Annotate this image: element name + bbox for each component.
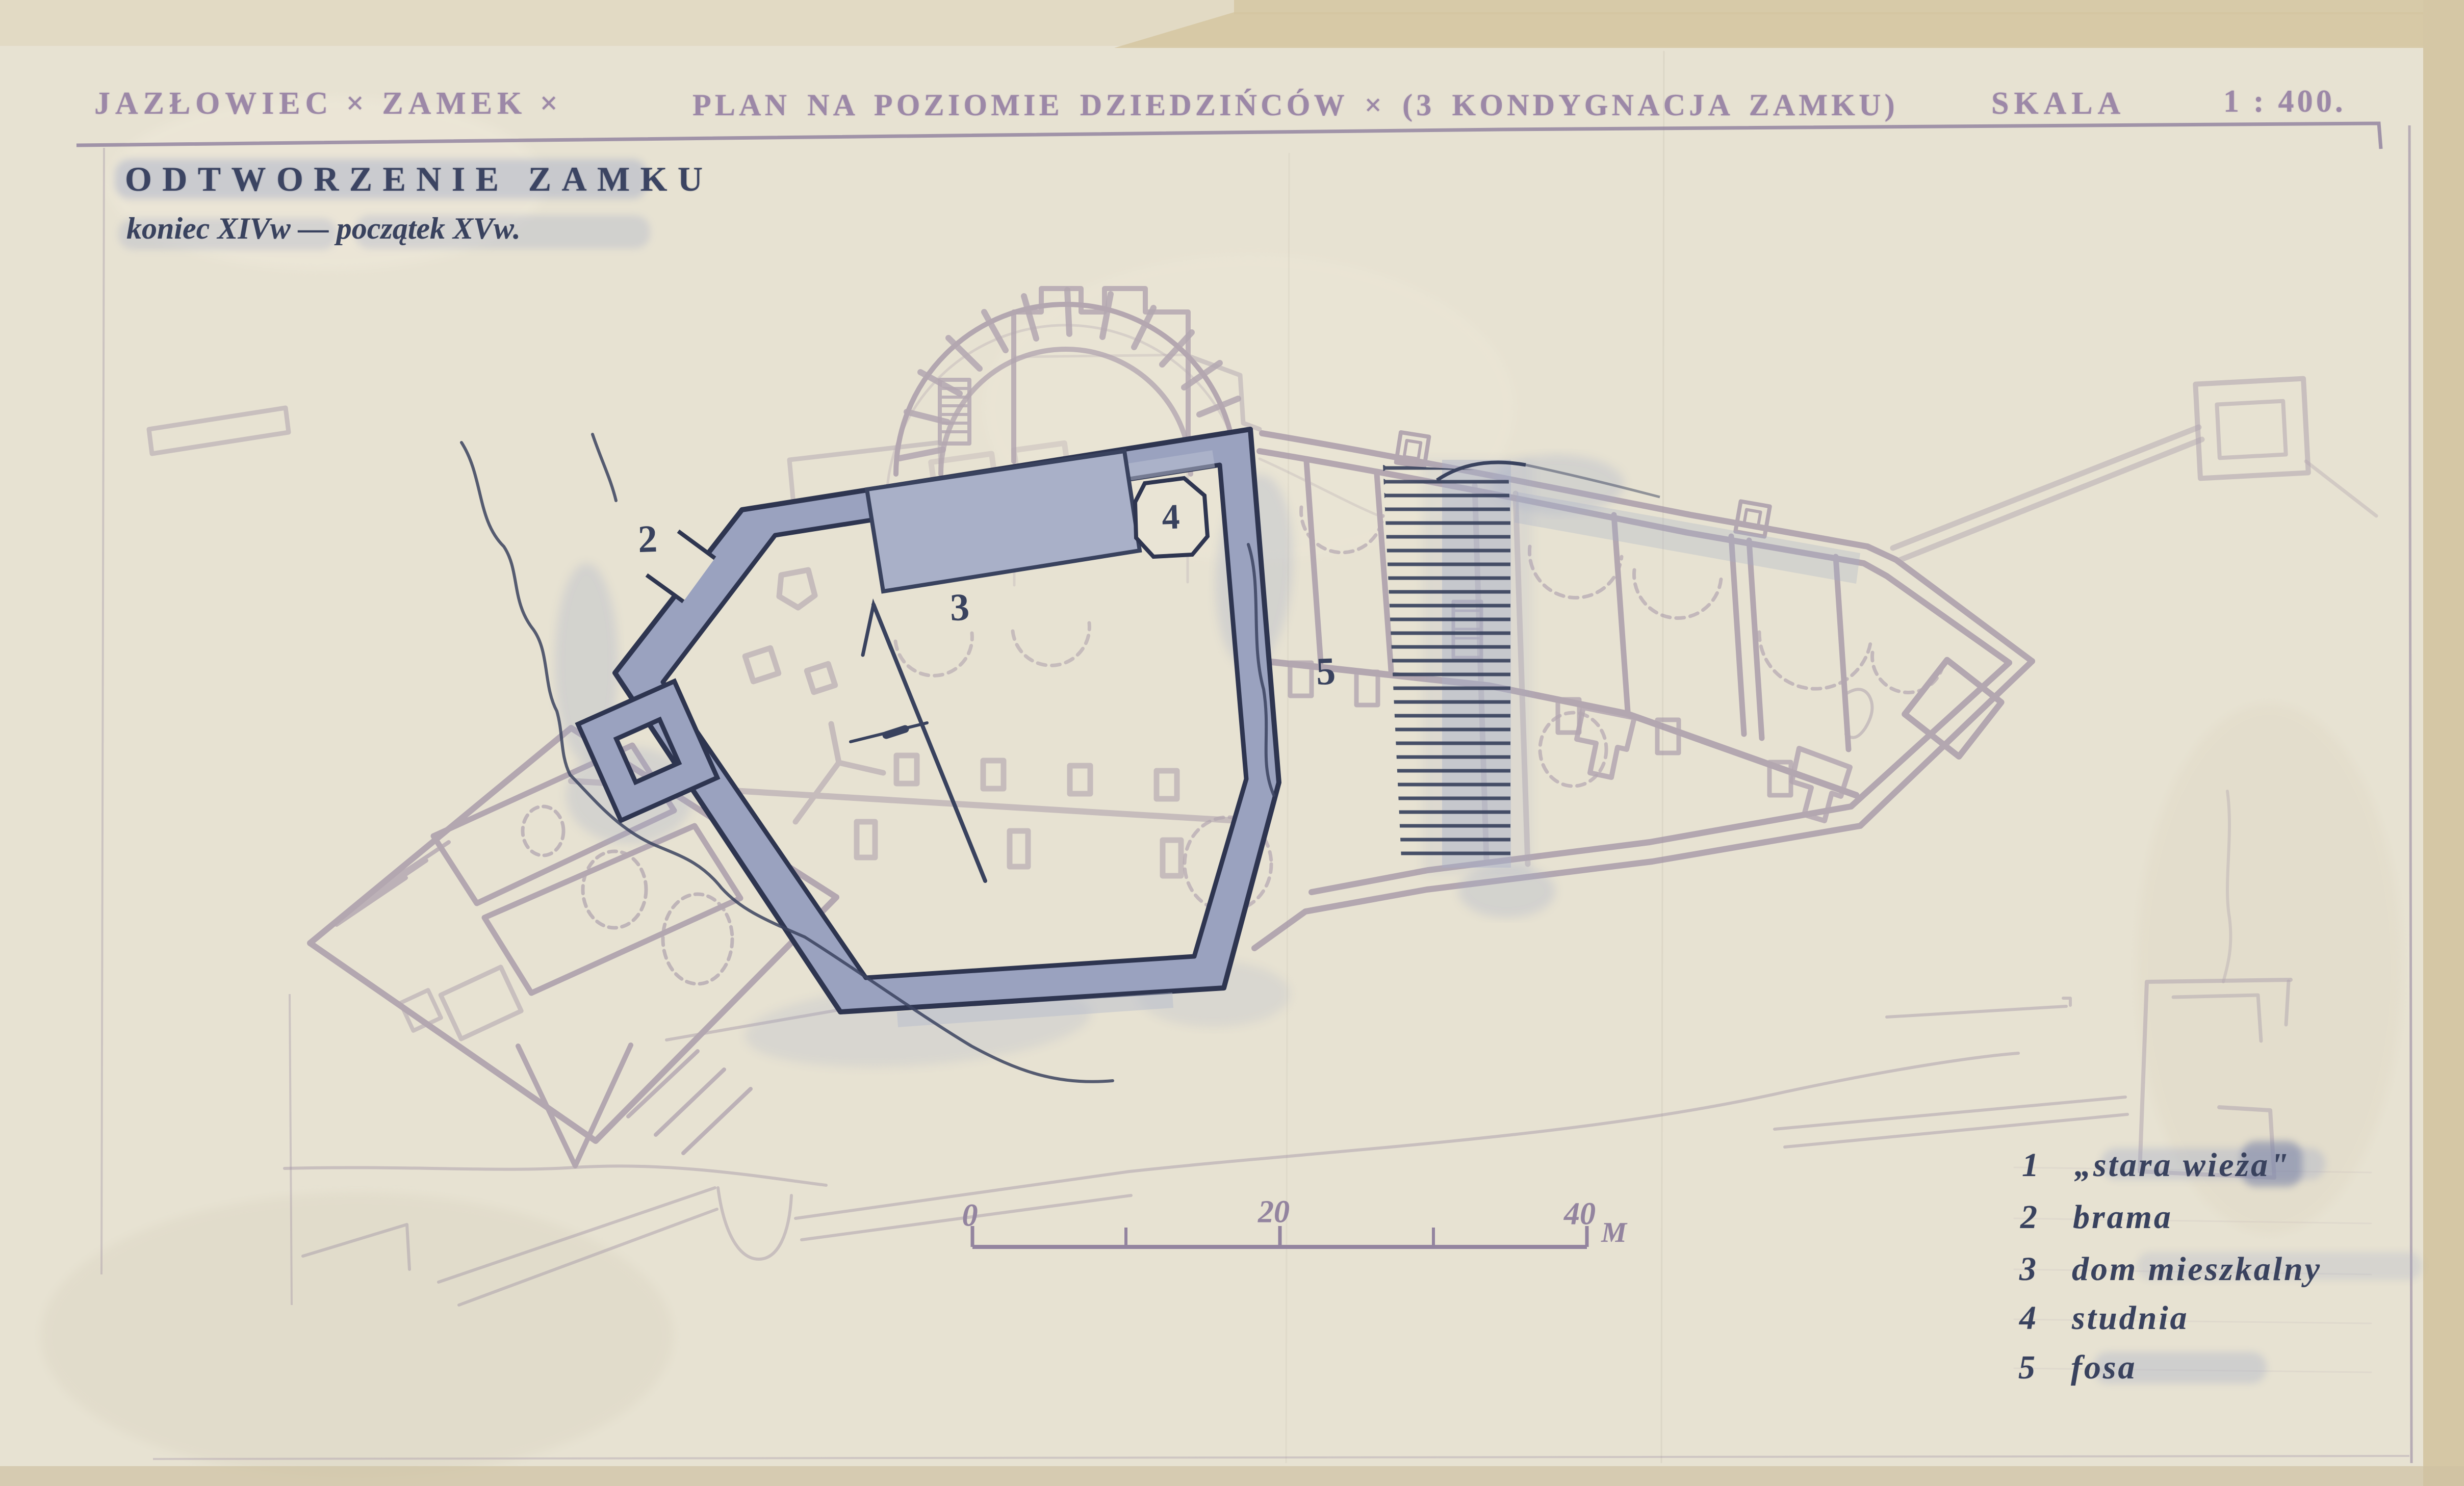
plan-label-gate: 2 <box>637 517 658 562</box>
plan-label-moat: 5 <box>1315 649 1336 694</box>
sheet-title-main: PLAN NA POZIOMIE DZIEDZIŃCÓW × (3 KONDYG… <box>692 88 1898 123</box>
legend-item-label: dom mieszkalny <box>2072 1250 2322 1289</box>
scale-label: SKALA <box>1991 86 2125 122</box>
west-ruin-bar <box>149 408 289 454</box>
legend-item: 4 studnia <box>2019 1299 2189 1338</box>
subtitle-line1: ODTWORZENIE ZAMKU <box>125 159 713 199</box>
legend-item-number: 2 <box>2020 1198 2037 1237</box>
stairs-icon <box>940 380 969 444</box>
plan-sheet: JAZŁOWIEC × ZAMEK × PLAN NA POZIOMIE DZI… <box>0 0 2464 1486</box>
legend-item-number: 5 <box>2018 1348 2035 1387</box>
subtitle-line2: koniec XIVw — początek XVw. <box>126 211 521 246</box>
scale-unit: M <box>1601 1216 1627 1249</box>
legend-item-number: 3 <box>2019 1250 2036 1289</box>
plan-label-well: 4 <box>1161 497 1180 538</box>
legend-item-number: 1 <box>2022 1146 2039 1185</box>
north-arrow-icon <box>851 605 985 881</box>
scale-tick-20: 20 <box>1258 1194 1290 1231</box>
legend-item-number: 4 <box>2019 1299 2036 1338</box>
scale-value: 1 : 400. <box>2223 84 2346 120</box>
legend-item-label: brama <box>2073 1198 2173 1237</box>
legend-item: 3 dom mieszkalny <box>2019 1250 2322 1289</box>
legend-item: 5 fosa <box>2018 1348 2137 1387</box>
legend-item-label: „stara wieża" <box>2074 1146 2291 1185</box>
sheet-title-location: JAZŁOWIEC × ZAMEK × <box>94 86 563 122</box>
plan-label-house: 3 <box>949 585 970 630</box>
legend-item-label: studnia <box>2072 1299 2189 1338</box>
legend-item: 2 brama <box>2020 1198 2173 1237</box>
legend-item: 1 „stara wieża" <box>2022 1146 2291 1185</box>
legend-item-label: fosa <box>2071 1348 2137 1387</box>
scale-tick-0: 0 <box>962 1198 978 1234</box>
scale-tick-40: 40 <box>1564 1196 1596 1233</box>
residential-house <box>867 451 1140 591</box>
